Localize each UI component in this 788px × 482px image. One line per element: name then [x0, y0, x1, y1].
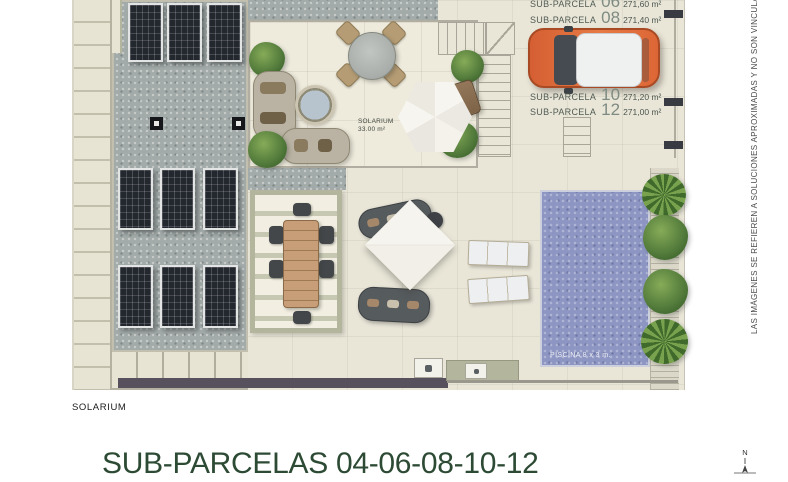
planter-strip	[446, 360, 519, 381]
sofa-pillow	[367, 299, 379, 308]
parcel-row-08: SUB-PARCELA 08 271,40 m²	[530, 8, 661, 28]
car-rear-window	[642, 38, 649, 82]
round-dining-table	[348, 32, 396, 80]
solar-panel	[118, 168, 153, 230]
car-top-view	[528, 28, 660, 88]
boundary-wall	[118, 378, 448, 388]
solar-panel	[203, 168, 238, 230]
terrace-edge-line	[447, 380, 678, 383]
parcel-area: 271,00 m²	[623, 107, 661, 117]
round-bush	[643, 215, 688, 260]
fence-post	[664, 98, 683, 106]
pergola-chair	[269, 260, 284, 278]
entry-steps	[563, 117, 591, 157]
mid-concrete-strip	[248, 168, 346, 190]
sofa-pillow	[294, 139, 308, 152]
sofa-pillow	[260, 82, 286, 94]
solarium-caption: SOLARIUM	[72, 402, 126, 413]
fence-post	[664, 141, 683, 149]
pergola-chair	[293, 311, 311, 324]
roof-corner-notch	[112, 0, 122, 53]
car-roof	[576, 33, 642, 87]
fence-line	[674, 0, 676, 158]
utility-box	[414, 358, 443, 378]
roof-drain-core	[154, 121, 159, 126]
car-windshield	[554, 35, 578, 85]
garden-sofa	[357, 286, 431, 324]
sofa-horizontal	[281, 128, 350, 164]
staircase-corner	[486, 22, 515, 55]
utility-icon	[425, 365, 432, 372]
solar-panel	[118, 265, 153, 328]
sofa-pillow	[367, 217, 380, 227]
pergola-chair	[269, 226, 284, 244]
sun-lounger	[468, 240, 530, 267]
top-concrete-strip	[248, 0, 438, 20]
parcel-number: 08	[601, 8, 620, 28]
swimming-pool: PISCINA 8 x 3 m.	[540, 190, 650, 367]
fence-post	[664, 10, 683, 18]
palm-bush	[642, 174, 686, 216]
wooden-dining-table	[283, 220, 319, 308]
pool-label: PISCINA 8 x 3 m.	[550, 352, 611, 359]
sofa-pillow	[318, 139, 332, 152]
solar-panel	[207, 3, 242, 62]
sofa-pillow	[260, 112, 286, 124]
round-rug	[295, 85, 335, 125]
pergola-chair	[319, 226, 334, 244]
sofa-pillow	[387, 300, 399, 309]
parcel-row-12: SUB-PARCELA 12 271,00 m²	[530, 100, 661, 120]
page-title: SUB-PARCELAS 04-06-08-10-12	[102, 447, 539, 481]
parcel-label: SUB-PARCELA	[530, 107, 596, 117]
floorplan: SOLARIUM 33.00 m² SUB-PARCELA 06 271,60 …	[72, 0, 685, 390]
solarium-area-label: SOLARIUM	[358, 118, 394, 126]
disclaimer-vertical-text: LAS IMÁGENES SE REFIEREN A SOLUCIONES AP…	[750, 0, 759, 334]
roof-drain-core	[236, 121, 241, 126]
roof-drain-marker	[232, 117, 245, 130]
sun-lounger	[467, 275, 530, 304]
solarium-area-note: SOLARIUM 33.00 m²	[358, 118, 394, 135]
roof-drain-marker	[150, 117, 163, 130]
sofa-pillow	[407, 301, 419, 310]
round-bush	[643, 269, 688, 314]
left-tile-walkway	[72, 0, 112, 390]
pergola-chair	[319, 260, 334, 278]
solar-panel	[160, 265, 195, 328]
solar-panel	[128, 3, 163, 62]
solarium-area-value: 33.00 m²	[358, 126, 394, 134]
compass-rose: N	[730, 449, 760, 477]
solar-panel	[160, 168, 195, 230]
parcel-label: SUB-PARCELA	[530, 15, 596, 25]
parcel-area: 271,40 m²	[623, 15, 661, 25]
palm-bush	[641, 319, 688, 364]
pergola-chair	[293, 203, 311, 216]
floorplan-page: SOLARIUM 33.00 m² SUB-PARCELA 06 271,60 …	[0, 0, 788, 477]
utility-icon	[474, 369, 479, 374]
utility-box	[465, 363, 487, 379]
compass-needle-icon	[730, 457, 760, 477]
solar-panel	[167, 3, 202, 62]
solar-panel	[203, 265, 238, 328]
compass-north-label: N	[730, 449, 760, 457]
parcel-number: 12	[601, 100, 620, 120]
